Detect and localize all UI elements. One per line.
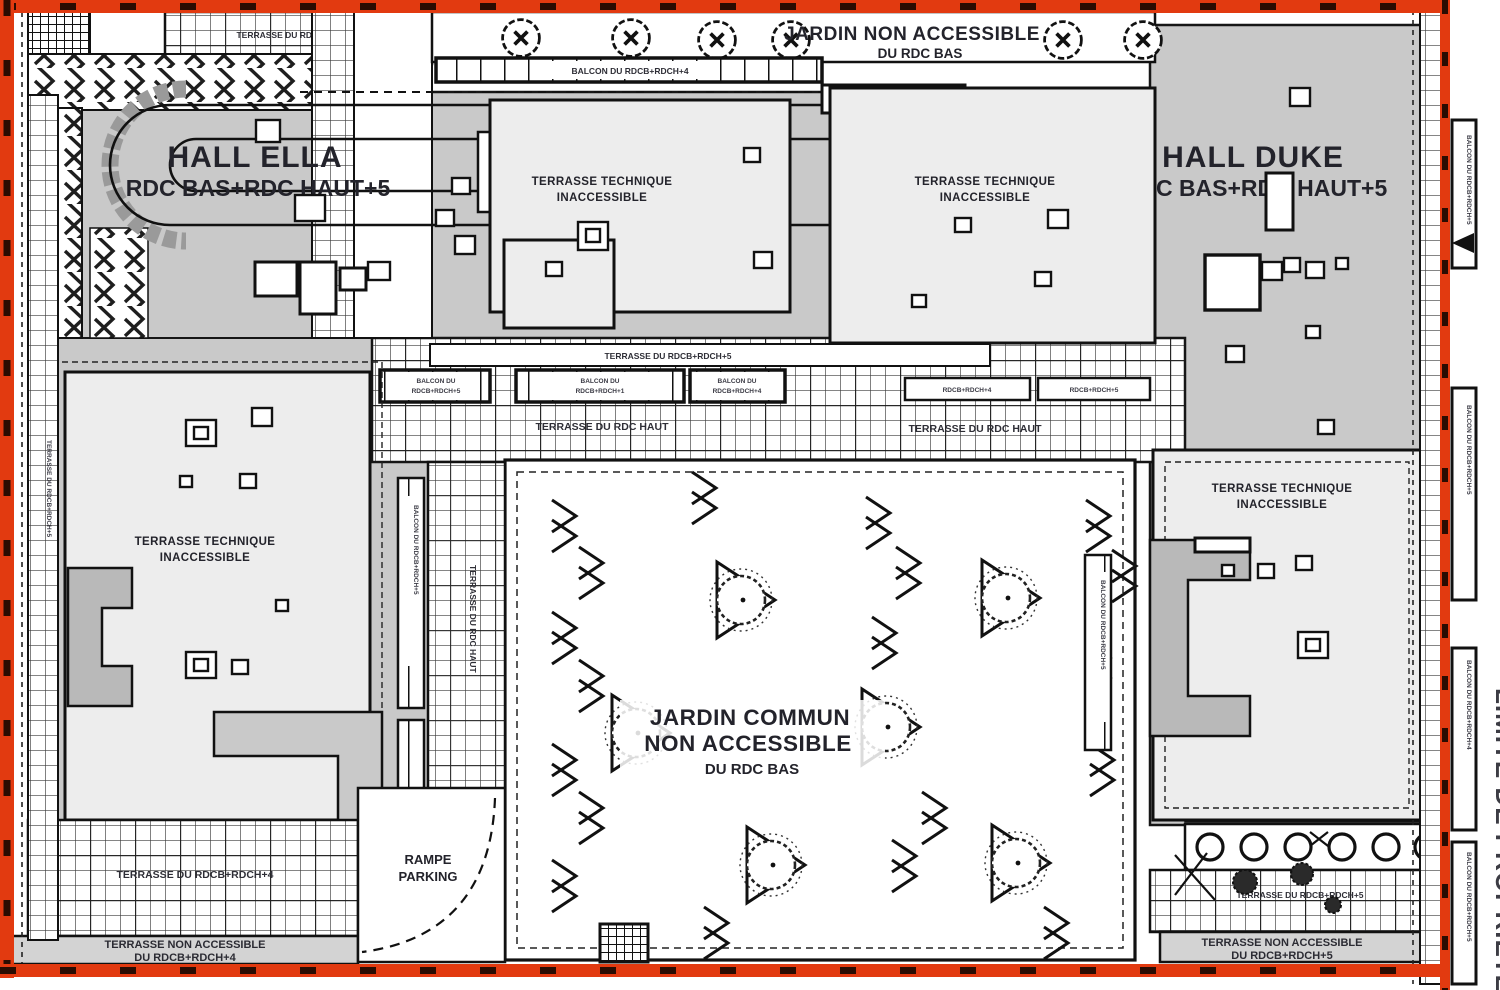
balcon-strip5: RDCB+RDCH+5 [1070,387,1119,394]
balcon-strip2-l2: RDCB+RDCH+1 [576,388,625,395]
label-terrasse-rdcb5-mid: TERRASSE DU RDCB+RDCH+5 [604,351,731,361]
balcon-vert-label-2: BALCON DU RDCB+RDCH+5 [1099,580,1106,670]
sw-nonacc-l2: DU RDCB+RDCH+4 [134,952,236,964]
balcon-east-1: BALCON DU RDCB+RDCH+5 [1465,135,1472,225]
tech-D-l2: INACCESSIBLE [1237,499,1327,511]
hall-duke-name: HALL DUKE [1162,141,1344,174]
sw-nonacc-l1: TERRASSE NON ACCESSIBLE [105,939,266,951]
balcon-strip1-l2: RDCB+RDCH+5 [412,388,461,395]
se-nonacc-l1: TERRASSE NON ACCESSIBLE [1202,937,1363,949]
floor-plan-page: TERRASSE DU RDCB+RDCH+5 BALCON DU RDCB+R… [0,0,1500,990]
tech-C-l1: TERRASSE TECHNIQUE [135,536,276,548]
middle-terrace-band: TERRASSE DU RDCB+RDCH+5 BALCON DU RDCB+R… [372,338,1185,462]
tech-D-l1: TERRASSE TECHNIQUE [1212,483,1353,495]
ramp-l2: PARKING [399,869,458,884]
hall-ella-levels: RDC BAS+RDC HAUT+5 [126,175,391,201]
limite-de-propriete-label: LIMITE DE PROPRIETE [1490,688,1500,990]
garden-central-l3: DU RDC BAS [705,761,799,778]
label-terrasse-rdcb5-west-vert: TERRASSE DU RDCB+RDCH+5 [45,440,52,538]
balcon-strip4: RDCB+RDCH+4 [943,387,992,394]
label-terrasse-rdcb5-se: TERRASSE DU RDCB+RDCH+5 [1236,890,1363,900]
hall-ella-name: HALL ELLA [167,141,342,174]
southeast-terraces: TERRASSE DU RDCB+RDCH+5 TERRASSE NON ACC… [1150,824,1441,962]
tech-B-l2: INACCESSIBLE [940,192,1030,204]
central-garden: JARDIN COMMUN NON ACCESSIBLE DU RDC BAS [505,460,1136,962]
balcon-east-3: BALCON DU RDCB+RDCH+4 [1465,660,1472,750]
garden-central-l1: JARDIN COMMUN [650,705,850,730]
garden-north-line1: JARDIN NON ACCESSIBLE [784,24,1040,45]
balcon-strip3-l2: RDCB+RDCH+4 [713,388,762,395]
balcon-east-2: BALCON DU RDCB+RDCH+5 [1465,405,1472,495]
label-terrasse-rdcb4: TERRASSE DU RDCB+RDCH+4 [117,869,274,881]
southwest-terraces: TERRASSE DU RDCB+RDCH+4 TERRASSE NON ACC… [10,820,358,964]
tech-A-l1: TERRASSE TECHNIQUE [532,176,673,188]
parking-ramp: RAMPE PARKING [358,788,505,962]
label-terrasse-rdc-haut-vert: TERRASSE DU RDC HAUT [468,565,478,673]
balcon-strip1-l1: BALCON DU [417,378,456,385]
ramp-l1: RAMPE [405,852,452,867]
garden-north-line2: DU RDC BAS [878,46,963,61]
balcon-vert-label-1: BALCON DU RDCB+RDCH+5 [412,505,419,595]
east-garden-strip: BALCON DU RDCB+RDCH+5 [1085,555,1111,750]
label-terrasse-rdc-haut-left: TERRASSE DU RDC HAUT [535,421,669,433]
balcon-east-4: BALCON DU RDCB+RDCH+5 [1465,852,1472,942]
hall-duke-levels: RDC BAS+RDC HAUT+5 [1123,175,1388,201]
balcon-strip2-l1: BALCON DU [581,378,620,385]
tech-C-l2: INACCESSIBLE [160,552,250,564]
west-edge-strip: TERRASSE DU RDCB+RDCH+5 [22,12,58,963]
label-terrasse-rdc-haut-right: TERRASSE DU RDC HAUT [908,423,1042,435]
tech-A-l2: INACCESSIBLE [557,192,647,204]
garden-central-l2: NON ACCESSIBLE [644,731,851,756]
balcon-top-strip: BALCON DU RDCB+RDCH+4 [571,66,688,76]
se-nonacc-l2: DU RDCB+RDCH+5 [1231,950,1332,962]
balcon-strip3-l1: BALCON DU [718,378,757,385]
site-plan-drawing: TERRASSE DU RDCB+RDCH+5 BALCON DU RDCB+R… [0,0,1500,990]
tech-B-l1: TERRASSE TECHNIQUE [915,176,1056,188]
